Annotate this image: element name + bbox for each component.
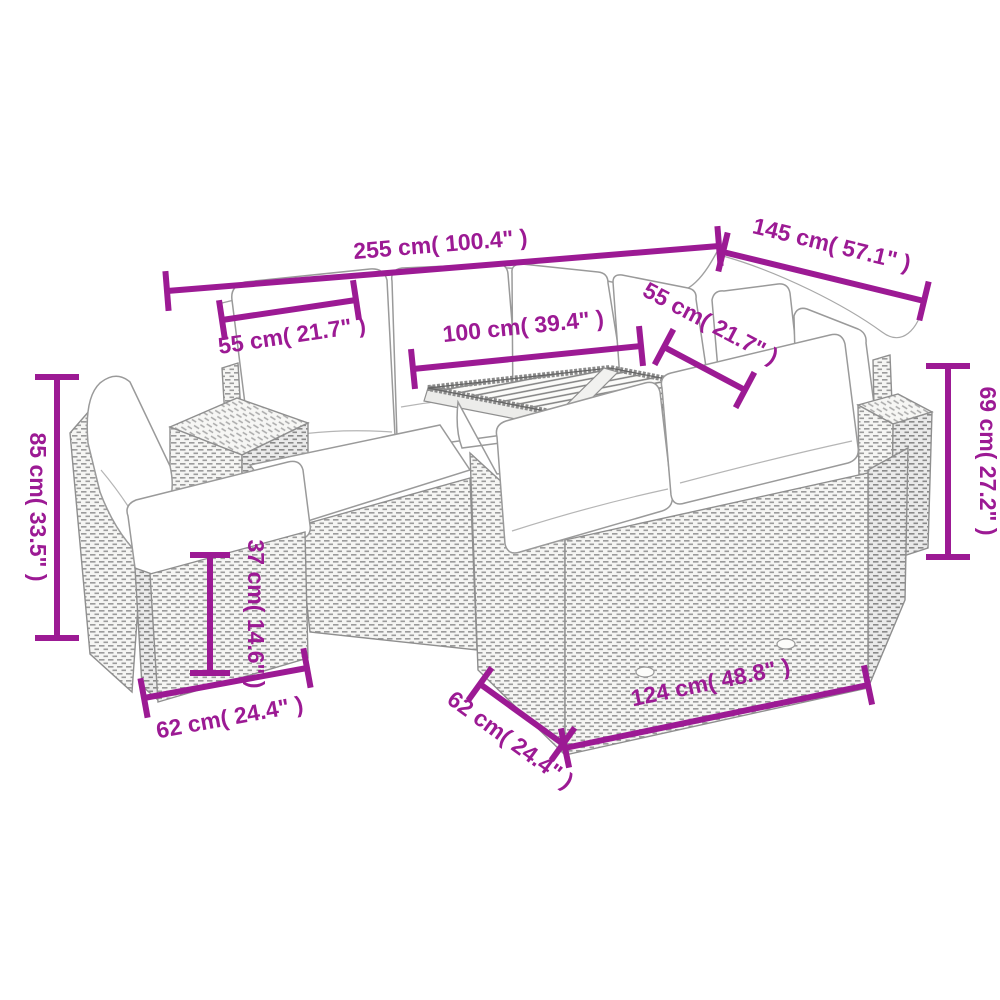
drain-hole xyxy=(777,639,795,649)
drain-hole xyxy=(636,667,654,677)
dimension-footstool-width-label: 62 cm( 24.4" ) xyxy=(154,691,305,743)
right-side-face xyxy=(868,448,908,688)
dimension-back-height-label: 85 cm( 33.5" ) xyxy=(25,433,51,582)
dimension-sofa-height-label: 69 cm( 27.2" ) xyxy=(975,387,1000,536)
furniture-dimension-diagram: 255 cm( 100.4" ) 145 cm( 57.1" ) 55 cm( … xyxy=(0,0,1000,1000)
dimension-back-height: 85 cm( 33.5" ) xyxy=(25,377,79,638)
dimension-total-width-label: 255 cm( 100.4" ) xyxy=(352,224,528,264)
dimension-diagram-canvas: 255 cm( 100.4" ) 145 cm( 57.1" ) 55 cm( … xyxy=(0,0,1000,1000)
dimension-footstool-height-label: 37 cm( 14.6" ) xyxy=(243,540,269,689)
right-end-section xyxy=(858,355,932,688)
dimension-sofa-height: 69 cm( 27.2" ) xyxy=(926,366,1000,557)
